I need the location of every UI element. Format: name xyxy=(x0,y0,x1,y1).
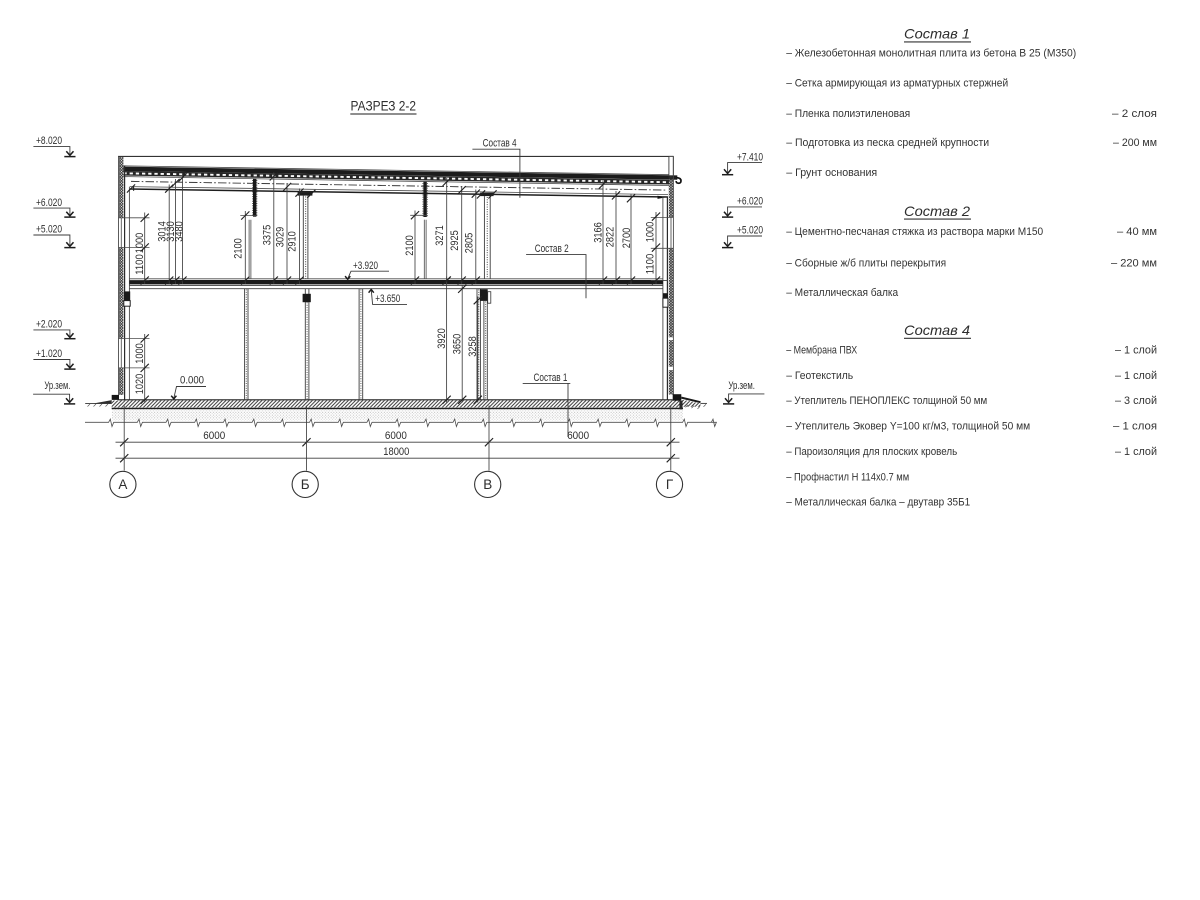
svg-text:– Грунт основания: – Грунт основания xyxy=(786,167,877,179)
svg-text:+8.020: +8.020 xyxy=(36,135,62,147)
svg-text:3650: 3650 xyxy=(451,334,463,355)
svg-text:1000: 1000 xyxy=(645,222,657,243)
svg-text:2822: 2822 xyxy=(605,227,617,248)
svg-text:3920: 3920 xyxy=(436,328,448,349)
svg-text:Ур.зем.: Ур.зем. xyxy=(728,380,755,392)
svg-text:– Пленка полиэтиленовая: – Пленка полиэтиленовая xyxy=(786,108,910,120)
svg-text:Ур.зем.: Ур.зем. xyxy=(44,380,70,392)
svg-text:2700: 2700 xyxy=(621,228,633,249)
svg-text:1020: 1020 xyxy=(134,374,146,395)
svg-text:Состав 4: Состав 4 xyxy=(483,137,517,149)
svg-text:0.000: 0.000 xyxy=(180,375,204,387)
svg-text:– Подготовка из песка средней: – Подготовка из песка средней крупности xyxy=(786,137,989,149)
svg-text:2910: 2910 xyxy=(287,231,299,252)
svg-text:1100: 1100 xyxy=(134,254,146,275)
svg-text:6000: 6000 xyxy=(203,430,225,442)
svg-text:– Утеплитель ПЕНОПЛЕКС толщино: – Утеплитель ПЕНОПЛЕКС толщиной 50 мм xyxy=(786,395,987,407)
svg-text:2925: 2925 xyxy=(449,230,461,251)
svg-text:– Утеплитель Эковер Y=100 кг/м: – Утеплитель Эковер Y=100 кг/м3, толщино… xyxy=(786,420,1030,432)
svg-text:– Цементно-песчаная стяжка из: – Цементно-песчаная стяжка из раствора м… xyxy=(786,226,1043,238)
svg-text:3029: 3029 xyxy=(274,227,286,248)
svg-text:– Металлическая балка: – Металлическая балка xyxy=(786,287,899,299)
svg-text:2100: 2100 xyxy=(404,235,416,256)
svg-text:2805: 2805 xyxy=(463,233,475,254)
svg-text:18000: 18000 xyxy=(383,446,409,458)
svg-text:3166: 3166 xyxy=(592,222,604,243)
svg-text:+7.410: +7.410 xyxy=(737,151,763,163)
svg-text:+6.020: +6.020 xyxy=(737,196,763,208)
svg-text:– 40 мм: – 40 мм xyxy=(1117,226,1157,238)
svg-text:3258: 3258 xyxy=(467,336,479,357)
svg-text:6000: 6000 xyxy=(567,430,589,442)
svg-text:– Геотекстиль: – Геотекстиль xyxy=(786,370,853,382)
svg-text:1000: 1000 xyxy=(134,233,146,254)
svg-text:Состав 2: Состав 2 xyxy=(904,203,970,219)
svg-text:– Сетка армирующая из арматурн: – Сетка армирующая из арматурных стержне… xyxy=(786,78,1008,90)
svg-text:+5.020: +5.020 xyxy=(737,225,763,237)
svg-text:– 1 слой: – 1 слой xyxy=(1115,446,1157,458)
svg-text:+3.650: +3.650 xyxy=(375,293,400,305)
svg-text:– 1 слой: – 1 слой xyxy=(1115,345,1157,357)
svg-text:+3.920: +3.920 xyxy=(353,260,378,272)
svg-text:– Пароизоляция для плоских кро: – Пароизоляция для плоских кровель xyxy=(786,446,957,458)
svg-text:3375: 3375 xyxy=(262,225,274,246)
svg-text:3271: 3271 xyxy=(434,225,446,246)
svg-text:– Профнастил Н 114х0.7 мм: – Профнастил Н 114х0.7 мм xyxy=(786,471,909,483)
svg-text:+1.020: +1.020 xyxy=(36,348,62,360)
svg-text:6000: 6000 xyxy=(385,430,407,442)
svg-text:– 220 мм: – 220 мм xyxy=(1111,257,1157,269)
svg-text:– Сборные ж/б плиты перекрытия: – Сборные ж/б плиты перекрытия xyxy=(786,257,946,269)
svg-text:В: В xyxy=(483,477,492,492)
svg-text:2100: 2100 xyxy=(233,238,245,259)
svg-text:+5.020: +5.020 xyxy=(36,224,62,236)
svg-text:Состав 4: Состав 4 xyxy=(904,322,970,338)
svg-text:– 1 слой: – 1 слой xyxy=(1115,370,1157,382)
svg-text:– 3 слой: – 3 слой xyxy=(1115,395,1157,407)
svg-text:1000: 1000 xyxy=(134,343,146,364)
svg-text:Состав 1: Состав 1 xyxy=(534,372,568,384)
svg-text:Г: Г xyxy=(666,477,674,492)
svg-text:– Железобетонная монолитная п: – Железобетонная монолитная плита из бет… xyxy=(786,47,1076,59)
svg-text:А: А xyxy=(118,477,127,492)
svg-text:3480: 3480 xyxy=(173,221,185,242)
svg-text:РАЗРЕЗ 2-2: РАЗРЕЗ 2-2 xyxy=(351,98,417,114)
svg-text:– Мембрана ПВХ: – Мембрана ПВХ xyxy=(786,345,858,357)
svg-text:Состав 2: Состав 2 xyxy=(535,243,569,255)
svg-text:– Металлическая балка – двутав: – Металлическая балка – двутавр 35Б1 xyxy=(786,497,970,509)
svg-text:1100: 1100 xyxy=(645,254,657,275)
svg-text:+2.020: +2.020 xyxy=(36,319,62,331)
svg-text:– 2 слоя: – 2 слоя xyxy=(1112,108,1157,120)
svg-text:+6.020: +6.020 xyxy=(36,197,62,209)
svg-text:Б: Б xyxy=(301,477,310,492)
svg-text:Состав 1: Состав 1 xyxy=(904,26,970,42)
svg-text:– 1 слоя: – 1 слоя xyxy=(1113,420,1157,432)
svg-text:– 200 мм: – 200 мм xyxy=(1113,137,1157,149)
